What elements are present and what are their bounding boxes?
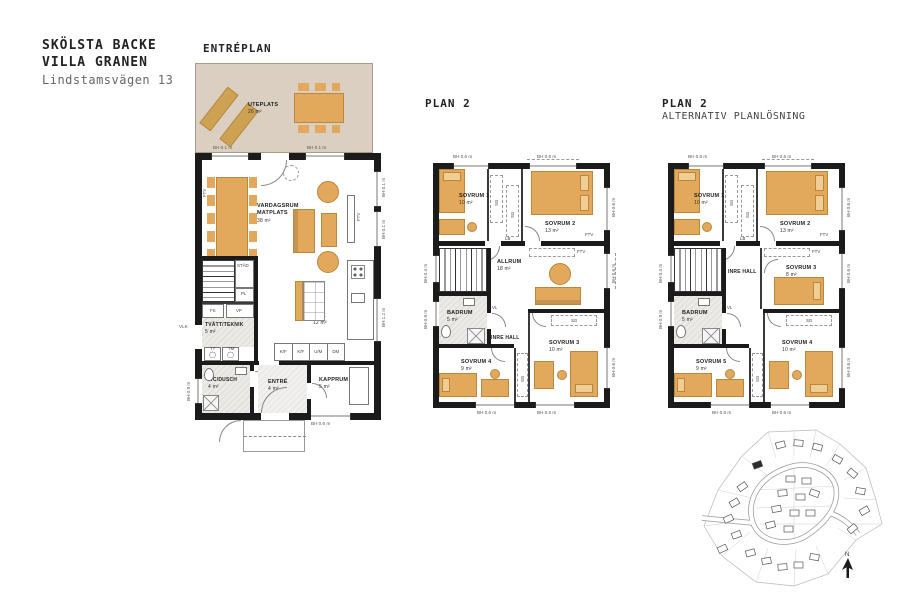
desk-chair [557,370,567,380]
window-dim: BH 0.6 m [612,189,617,217]
ftv-label: FTV [203,181,207,197]
window [764,163,812,169]
room-name: SOVRUM 4 [782,340,812,346]
bed-double [531,171,593,215]
room-area: 9 m² [461,366,472,372]
room-area: 5 m² [682,317,693,323]
wall [489,163,529,169]
plan2-drawing: SG SG LB SOVRUM 1 10 m² SOVRUM 2 13 m² F… [433,163,610,408]
pillow [677,378,685,392]
site-road [702,465,858,542]
window-dim: BH 0.9 m [659,301,664,329]
window-dim: BH 0.6 m [772,411,791,416]
shower [702,328,720,344]
dm-label: DM [332,350,339,354]
window [770,402,810,408]
terrace-chairs-bottom [298,125,340,133]
wall [254,256,258,365]
north-arrow: N [842,552,853,578]
pl-closet: PL [235,288,254,302]
sovrum2-label: SOVRUM 2 13 m² [780,221,810,236]
room-area: 38 m² [257,218,271,224]
dining-table [216,177,248,263]
tm-label: TM [228,347,234,351]
window [211,153,249,160]
window [604,253,610,289]
room-name: ENTRÉ [268,379,288,385]
pillow [575,384,593,393]
pillow [580,195,589,211]
door-swing [491,348,505,362]
toilet [204,368,214,381]
wall [604,389,610,408]
wardrobe-sg: SG [752,353,763,397]
window-dim: BH 0.1 m [307,146,326,151]
wardrobe-sg: SG [786,315,832,326]
wall [528,313,530,402]
wall [776,241,839,246]
wall [756,169,758,241]
stad-closet: STÄD [235,260,254,288]
sink [698,298,710,306]
room-name: SOVRUM 5 [696,359,726,365]
sg-label: SG [571,319,577,323]
door-swing [760,226,775,241]
tv-bench [347,195,355,243]
wall [439,241,485,246]
room-name: SOVRUM 4 [461,359,491,365]
badrum-label: BADRUM 5 m² [447,310,487,325]
kf-label: K/F [280,350,287,354]
wall [674,241,720,246]
wardrobe-sg: SG [490,175,503,223]
room-area: 10 m² [549,347,563,353]
wall [724,163,764,169]
fridge-freezer: K/F [292,343,311,361]
window-dim: BH 0.6 m [311,422,330,427]
room-name: MATPLATS [257,210,288,216]
wall [604,231,610,253]
room-name: BADRUM [682,310,708,316]
room-name: KAPPRUM [319,377,348,383]
door-swing [767,313,781,327]
wall [839,289,845,347]
room-name: TVÄTT/TEKNIK [205,322,244,328]
um-label: U/M [314,350,322,354]
pillow [815,175,824,191]
window-dim: BH 0.6 m [612,349,617,377]
window [604,187,610,231]
washing-machine: TT [204,347,221,361]
desk [439,219,465,235]
pillow [443,172,461,181]
entreplan-drawing: UTEPLATS 26 m² BH 0.1 m BH 0.1 m [195,63,390,428]
plan2alt-subtitle: ALTERNATIV PLANLÖSNING [662,111,805,122]
sg-label: SG [495,194,499,206]
sovrum1-label: SOVRUM 1 10 m² [694,193,724,208]
window [839,253,845,289]
appliance-row: K/F K/F U/M DM [275,343,345,361]
desk [769,361,789,389]
toilet [676,325,686,338]
terrace-chairs-top [298,83,340,91]
tvatt-label: TVÄTT/TEKNIK 5 m² [205,322,254,336]
wardrobe-sg: SG [506,185,519,237]
staircase [674,248,722,292]
wall [668,402,710,408]
sovrum4-label: SOVRUM 4 9 m² [461,359,491,374]
room-name: SOVRUM 1 [459,193,489,199]
oven-micro: U/M [309,343,328,361]
window-dim: BH 0.6 m [688,155,707,160]
door-swing [219,420,241,442]
desk-chair [490,369,500,379]
window-dim: BH 0.1 m [382,213,387,239]
desk [481,379,509,397]
sg-label: SG [806,319,812,323]
door-swing [525,226,540,241]
sofa [535,287,581,305]
wall [604,163,610,187]
sovrum5-label: SOVRUM 5 9 m² [696,359,726,374]
ftv-label: FTV [357,205,361,221]
wall [722,248,726,313]
window [535,402,575,408]
wall [433,402,475,408]
project-name: SKÖLSTA BACKE [42,38,173,53]
armchair [317,251,339,273]
wall [760,248,762,309]
site-boundary [704,430,882,586]
inre-hall-label: INRE HALL [728,269,756,276]
tt-label: TT [210,347,215,351]
plan2-title: PLAN 2 [425,97,471,110]
pillow [442,378,450,392]
sofa [293,209,315,253]
room-name: UTEPLATS [248,102,278,108]
window-dim: BH 0.9 m [424,301,429,329]
wall [374,342,381,420]
uteplats-label: UTEPLATS 26 m² [248,102,278,117]
window-dim: BH 0.1 m [382,171,387,197]
room-area: 5 m² [205,329,216,335]
staircase [439,248,487,292]
wardrobe-sg: SG [551,315,597,326]
door-swing [492,313,506,327]
room-area: 13 m² [545,228,559,234]
window-dim: BH 0.4 m [659,255,664,283]
window-dim: BH 0.6 m [453,155,472,160]
wall [289,413,307,420]
window [374,211,381,247]
pl-label: PL [241,292,253,296]
ftv-label: FTV [577,250,585,254]
entry-porch [243,420,305,452]
window-dim: BH 0.6 m [477,411,496,416]
kf-label: K/F [297,350,304,354]
street-address: Lindstamsvägen 13 [42,73,173,87]
room-name: SOVRUM 1 [694,193,724,199]
drawing-sheet: SKÖLSTA BACKE VILLA GRANEN Lindstamsväge… [0,0,900,600]
room-area: 10 m² [459,200,473,206]
fridge-freezer: K/F [274,343,293,361]
kapprum-label: KAPPRUM 5 m² [319,377,348,392]
door-swing [726,348,740,362]
wall [374,247,381,298]
terrace-table [294,93,344,123]
wall [307,365,311,383]
window-dim: BH 0.6 m [847,255,852,283]
vlk-label: VLK [179,325,188,330]
vl-label: VL [727,306,732,310]
door-swing [764,259,778,273]
ftv-label: FTV [812,250,820,254]
desk-chair [725,369,735,379]
sg-label: SG [511,206,515,218]
site-plan: N [698,428,898,598]
window [839,187,845,231]
kitchen-island-cabinets [303,281,325,321]
room-area: 5 m² [319,384,330,390]
shower [467,328,485,344]
kitchen-sink [351,293,365,303]
room-area: 26 m² [248,109,262,115]
sovrum1-label: SOVRUM 1 10 m² [459,193,489,208]
ceiling-lamp [283,165,299,181]
uteplats-terrace: UTEPLATS 26 m² [195,63,373,153]
coffee-table [321,213,337,247]
room-area: 13 m² [780,228,794,234]
sg-label: SG [521,370,525,382]
wall [249,153,261,160]
wall [374,153,381,171]
room-area: 10 m² [694,200,708,206]
fs-closet: FS [202,304,224,318]
staircase [202,260,235,302]
dining-chairs-left [207,177,215,263]
armchair [317,181,339,203]
window-dim: BH 0.6 m [847,189,852,217]
dryer: TM [222,347,239,361]
inre-hall-label: INRE HALL [491,335,519,342]
door-swing [727,313,741,327]
bed-double [766,171,828,215]
wall [750,402,770,408]
wall [250,387,254,420]
wc-label: WC/DUSCH 4 m² [208,377,250,391]
desk-chair [702,222,712,232]
wardrobe-sg: SG [517,353,528,397]
wall [839,389,845,408]
desk [534,361,554,389]
pillow [580,175,589,191]
window [529,163,577,169]
wall [195,404,202,420]
room-name: SOVRUM 2 [545,221,575,227]
room-name: BADRUM [447,310,473,316]
window-dim: BH 0.6 m [537,155,556,160]
pillow [810,384,828,393]
wall [736,241,760,246]
room-area: 18 m² [497,266,511,272]
shower [203,395,219,411]
wall [749,348,751,402]
plan2alt-title: PLAN 2 [662,97,708,110]
window [305,153,345,160]
door-swing [532,313,546,327]
stad-label: STÄD [237,264,253,268]
kitchen-island-bench [295,281,303,321]
wall [839,231,845,253]
title-block: SKÖLSTA BACKE VILLA GRANEN Lindstamsväge… [42,38,173,87]
desk [674,219,700,235]
fs-label: FS [210,309,223,313]
toilet [441,325,451,338]
desk-chair [467,222,477,232]
room-name: SOVRUM 3 [786,265,816,271]
window-dim: BH 0.6 m [537,411,556,416]
bed-single [674,373,712,397]
window [307,413,351,420]
window [475,402,515,408]
window-dim: BH 0.4 m [424,255,429,283]
bed-single [570,351,598,397]
window [195,378,202,404]
subject-house [752,460,763,469]
round-rug [549,263,571,285]
desk [716,379,744,397]
room-area: 9 m² [696,366,707,372]
wall [501,241,525,246]
window-dim: BH 1.2 m [382,301,387,327]
pillow [815,195,824,211]
window [604,347,610,389]
ftv-label: FTV [820,233,828,237]
room-area: 12 m² [313,320,327,326]
stove [351,265,365,279]
wall [604,289,610,347]
sg-label: SG [756,370,760,382]
ftv-label: FTV [585,233,593,237]
window [374,298,381,342]
plan2alt-drawing: SG SG LB SOVRUM 1 10 m² SOVRUM 2 13 m² F… [668,163,845,408]
sink [463,298,475,306]
bed-single [774,277,824,305]
window-dim: BH 0.9 m [187,375,192,401]
window-dim: BH 0.6 m [847,349,852,377]
wall [487,248,491,313]
room-name: SOVRUM 2 [780,221,810,227]
vl-label: VL [492,306,497,310]
tv-bench [764,248,810,257]
lb-label: LB [505,237,510,241]
sg-label: SG [746,206,750,218]
sg-label: SG [730,194,734,206]
wall [250,365,254,371]
pillow [678,172,696,181]
room-area: 10 m² [782,347,796,353]
wall [195,153,202,325]
window-dim: BH 0.1 m [213,146,232,151]
wall [763,313,765,402]
sink [235,367,247,375]
wall [289,153,305,160]
entreplan-house: FTV VARDAGSRUM MATPLATS 38 m² FTV STÄD P… [195,153,381,420]
wardrobe-sg: SG [725,175,738,223]
dishwasher: DM [327,343,346,361]
badrum-label: BADRUM 5 m² [682,310,722,325]
wardrobe [349,367,369,405]
tv-bench [529,248,575,257]
vp-label: VP [236,309,253,313]
house-model: VILLA GRANEN [42,55,173,70]
sovrum2-label: SOVRUM 2 13 m² [545,221,575,236]
wall [541,241,604,246]
entreplan-title: ENTRÉPLAN [203,42,272,55]
allrum-label: ALLRUM 18 m² [497,259,521,274]
window [839,347,845,389]
window-dim: BH 0.6 m [712,411,731,416]
dining-chairs-right [249,177,257,263]
wall [521,169,523,241]
porch-line [244,436,306,437]
wall [515,402,535,408]
window-dim: BH 0.6 m [612,255,617,283]
wall [514,348,516,402]
vp-closet: VP [226,304,254,318]
window [374,171,381,207]
north-label: N [845,552,849,558]
wall [307,399,311,420]
pillow [813,282,821,300]
window [710,402,750,408]
lb-label: LB [740,237,745,241]
room-area: 4 m² [208,384,219,390]
bed-single [805,351,833,397]
wardrobe-sg: SG [741,185,754,237]
room-area: 5 m² [447,317,458,323]
room-name: ALLRUM [497,259,521,265]
room-name: SOVRUM 3 [549,340,579,346]
desk-chair [792,370,802,380]
bed-single [439,373,477,397]
tvatt-teknik-room: TVÄTT/TEKNIK 5 m² [202,318,254,347]
window-dim: BH 0.6 m [772,155,791,160]
wall [839,163,845,187]
